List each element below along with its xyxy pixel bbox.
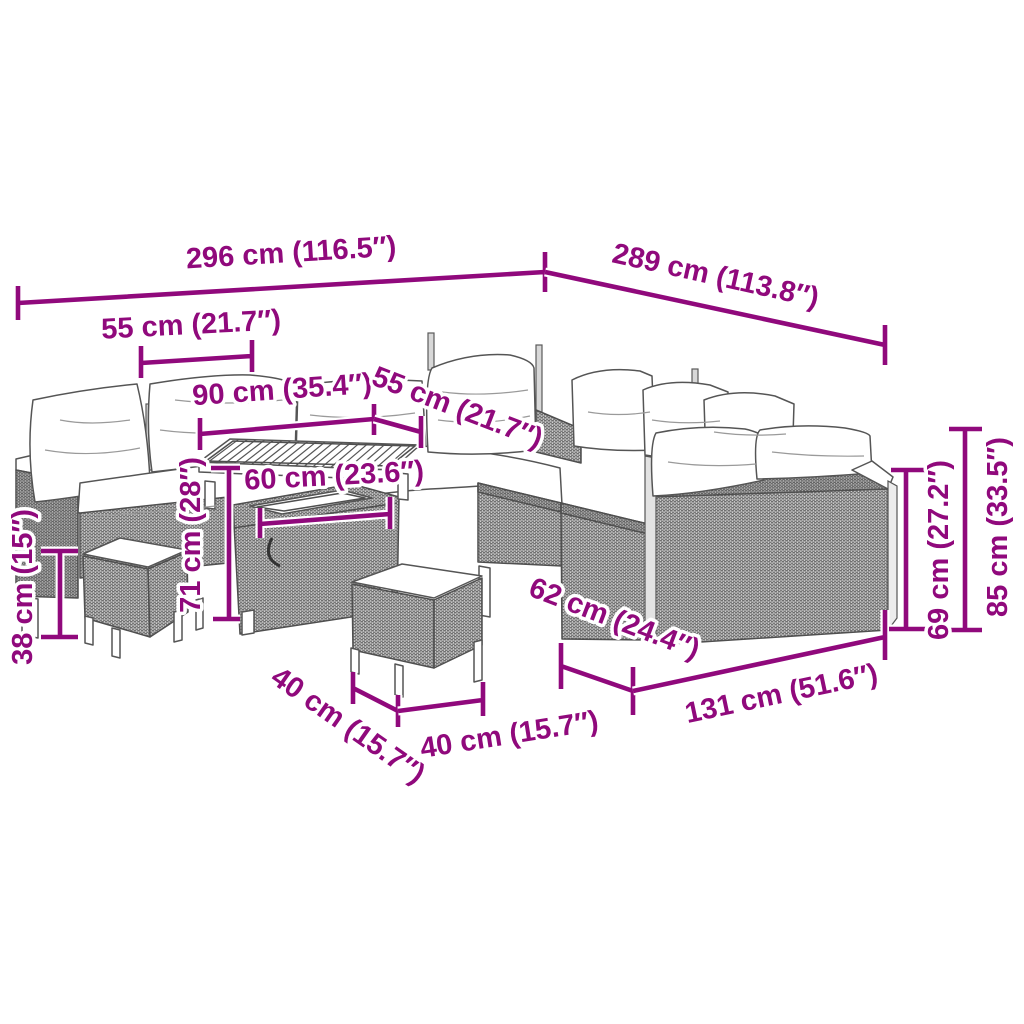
svg-text:85 cm (33.5″): 85 cm (33.5″): [982, 437, 1014, 617]
svg-text:71 cm (28″): 71 cm (28″): [175, 457, 207, 613]
svg-text:38 cm (15″): 38 cm (15″): [7, 509, 39, 665]
svg-text:69 cm (27.2″): 69 cm (27.2″): [923, 460, 955, 640]
